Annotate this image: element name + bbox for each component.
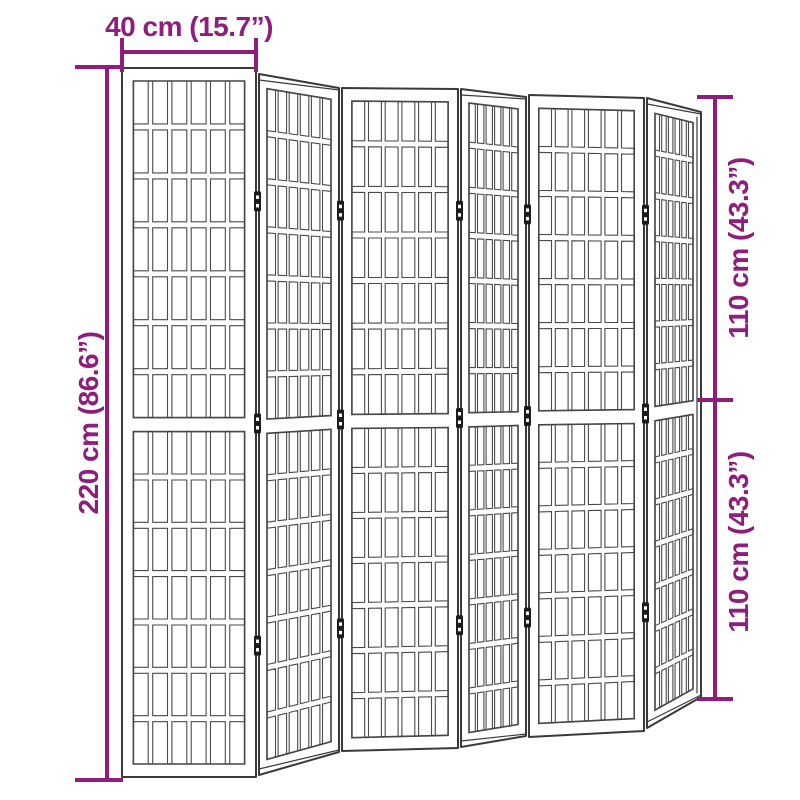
hinge-icon <box>337 410 344 430</box>
dimension-label-upper-section-height: 110 cm (43.3”) <box>723 157 754 338</box>
hinge-icon <box>254 414 261 434</box>
panel-2 <box>259 74 339 775</box>
panel-1 <box>122 68 256 777</box>
hinge-icon <box>642 205 649 225</box>
hinge-icon <box>337 618 344 638</box>
hinge-icon <box>642 602 649 622</box>
dimension-label-lower-section-height: 110 cm (43.3”) <box>723 451 754 632</box>
hinge-icon <box>456 408 463 428</box>
hinge-icon <box>524 608 531 628</box>
folding-screen-drawing <box>122 68 701 777</box>
hinge-icon <box>642 404 649 424</box>
panel-frame <box>122 68 256 777</box>
hinge-icon <box>456 615 463 635</box>
panel-4 <box>461 89 526 747</box>
panel-3 <box>342 88 458 751</box>
hinge-icon <box>456 201 463 221</box>
dimension-top <box>122 38 256 72</box>
panel-6 <box>647 98 701 728</box>
hinge-icon <box>254 191 261 211</box>
hinge-icon <box>337 201 344 221</box>
panel-5 <box>529 95 644 737</box>
hinge-icon <box>524 406 531 426</box>
dimension-label-total-height: 220 cm (86.6”) <box>73 332 104 515</box>
room-divider-dimension-diagram: 40 cm (15.7”) 220 cm (86.6”) 110 cm (43.… <box>0 0 800 800</box>
hinge-icon <box>524 204 531 224</box>
product-dimension-image: 40 cm (15.7”) 220 cm (86.6”) 110 cm (43.… <box>0 0 800 800</box>
hinge-icon <box>254 636 261 656</box>
dimension-label-panel-width: 40 cm (15.7”) <box>105 11 273 42</box>
